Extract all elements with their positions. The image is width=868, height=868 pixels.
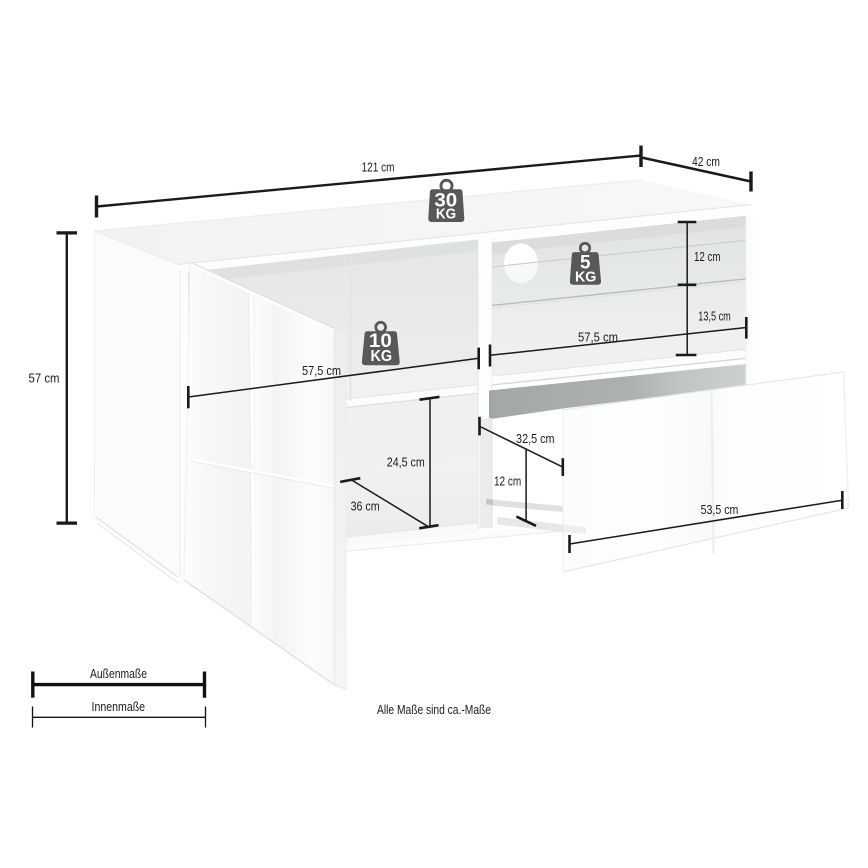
svg-text:Innenmaße: Innenmaße: [92, 699, 146, 714]
svg-text:Alle Maße sind ca.-Maße: Alle Maße sind ca.-Maße: [377, 702, 491, 717]
svg-text:Außenmaße: Außenmaße: [90, 666, 147, 681]
svg-text:57,5 cm: 57,5 cm: [302, 363, 341, 378]
svg-text:12 cm: 12 cm: [694, 249, 721, 264]
svg-text:32,5 cm: 32,5 cm: [516, 431, 555, 446]
svg-text:57 cm: 57 cm: [29, 371, 60, 386]
svg-text:24,5 cm: 24,5 cm: [387, 455, 425, 470]
svg-text:53,5 cm: 53,5 cm: [701, 502, 739, 517]
svg-text:13,5 cm: 13,5 cm: [698, 309, 731, 324]
svg-text:KG: KG: [436, 207, 456, 223]
svg-text:KG: KG: [575, 269, 596, 285]
svg-text:57,5 cm: 57,5 cm: [578, 330, 618, 345]
svg-text:KG: KG: [371, 348, 393, 365]
svg-text:121 cm: 121 cm: [362, 159, 395, 174]
svg-text:42 cm: 42 cm: [692, 154, 720, 169]
svg-text:36 cm: 36 cm: [351, 499, 380, 514]
svg-text:12 cm: 12 cm: [494, 474, 521, 489]
